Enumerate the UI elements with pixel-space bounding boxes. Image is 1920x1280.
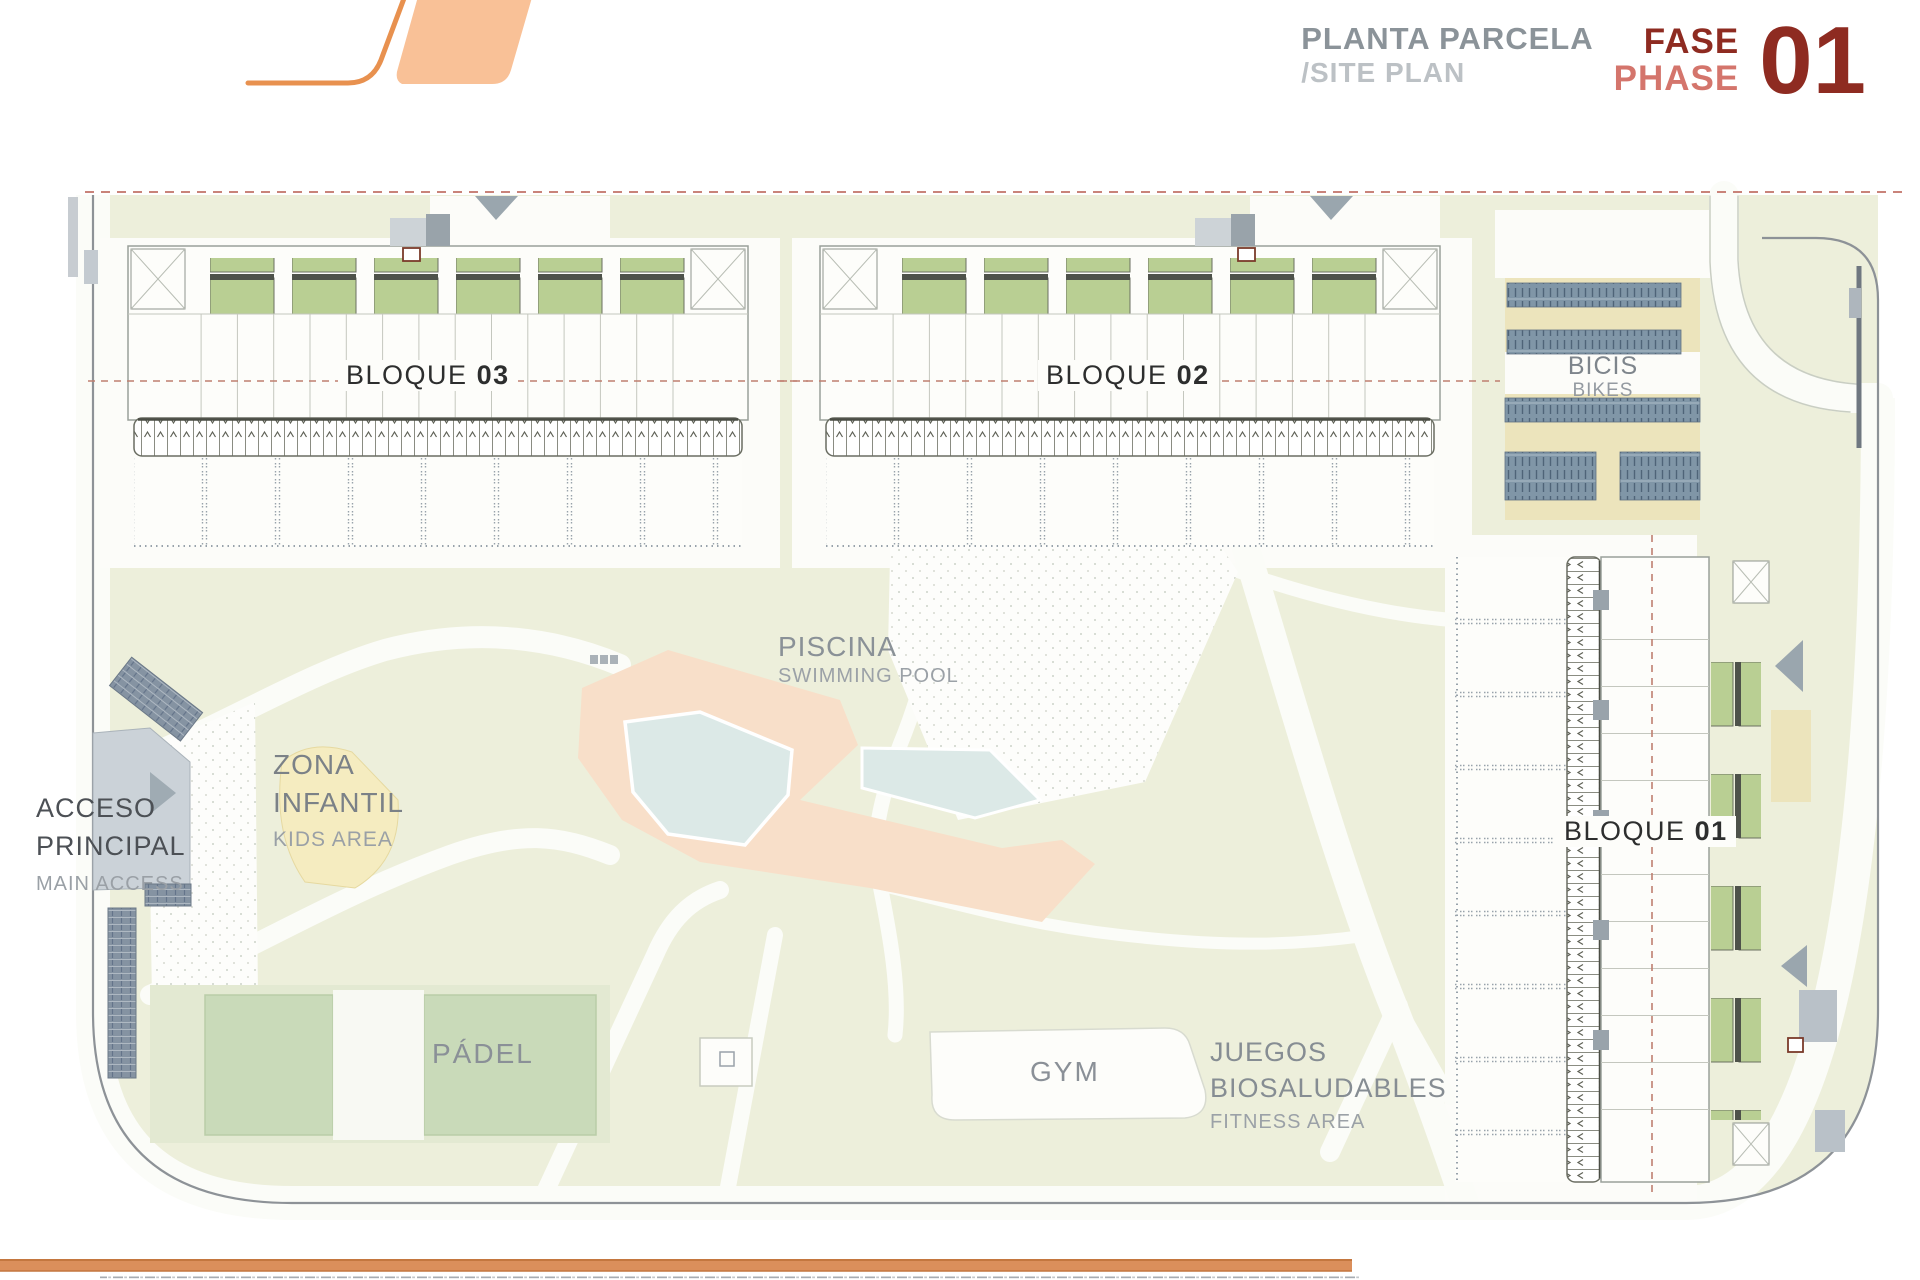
fine-print bbox=[100, 1274, 1360, 1279]
fitness-area-label: JUEGOS BIOSALUDABLES FITNESS AREA bbox=[1210, 1034, 1447, 1136]
footer bbox=[0, 1260, 1360, 1279]
block03-label: BLOQUE 03 bbox=[338, 360, 518, 391]
site-plan-drawing bbox=[0, 0, 1920, 1280]
main-access-label: ACCESO PRINCIPAL MAIN ACCESS bbox=[36, 790, 186, 898]
gym-label: GYM bbox=[1030, 1056, 1100, 1088]
pool-steps bbox=[590, 655, 618, 664]
kids-area-label: ZONA INFANTIL KIDS AREA bbox=[273, 746, 404, 854]
site-plan-page: PLANTA PARCELA /SITE PLAN FASE PHASE 01 … bbox=[0, 0, 1920, 1280]
page-header: PLANTA PARCELA /SITE PLAN FASE PHASE 01 bbox=[1301, 22, 1866, 101]
block02-label: BLOQUE 02 bbox=[1038, 360, 1218, 391]
phase-label-en: PHASE bbox=[1614, 61, 1740, 98]
phase-label-es: FASE bbox=[1614, 24, 1740, 61]
bikes-label: BICIS BIKES bbox=[1568, 353, 1638, 401]
block01-label: BLOQUE 01 bbox=[1556, 816, 1736, 847]
phase-label: FASE PHASE bbox=[1614, 24, 1740, 98]
plan-title-es: PLANTA PARCELA bbox=[1301, 22, 1593, 57]
pool-label: PISCINA SWIMMING POOL bbox=[778, 630, 959, 688]
brand-logo bbox=[248, 0, 534, 84]
padel-courts bbox=[150, 985, 610, 1143]
plan-title: PLANTA PARCELA /SITE PLAN bbox=[1301, 22, 1593, 88]
padel-label: PÁDEL bbox=[432, 1038, 534, 1070]
phase-number: 01 bbox=[1759, 22, 1866, 101]
playground-box bbox=[700, 1038, 752, 1086]
plan-title-en: /SITE PLAN bbox=[1301, 57, 1593, 88]
